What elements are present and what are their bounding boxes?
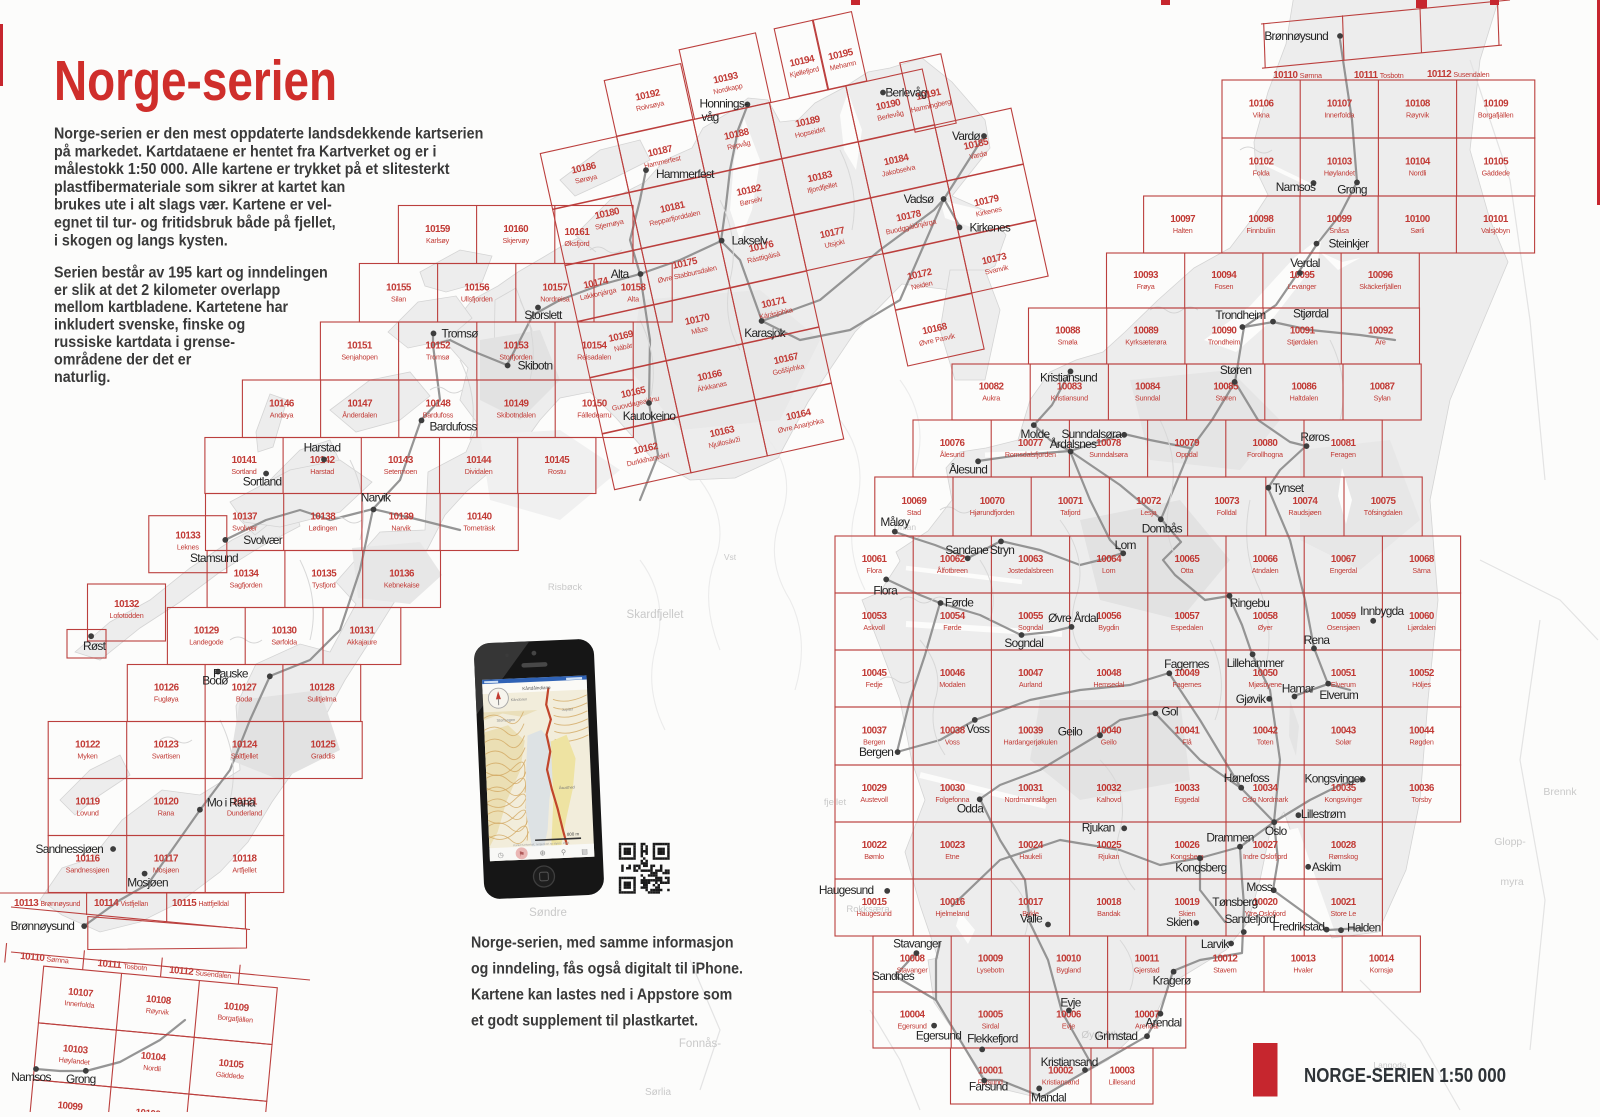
svg-text:Karasjok: Karasjok	[744, 326, 785, 340]
svg-text:Innerfolda: Innerfolda	[1324, 111, 1354, 120]
svg-text:Fonnås-: Fonnås-	[679, 1038, 721, 1050]
svg-text:10073: 10073	[1214, 496, 1240, 507]
svg-text:Mosjøen: Mosjøen	[153, 866, 179, 875]
svg-text:Sogndal: Sogndal	[1018, 623, 1044, 632]
svg-text:Farsund: Farsund	[969, 1080, 1008, 1094]
svg-text:10030: 10030	[940, 783, 966, 794]
svg-text:Røgden: Røgden	[1409, 738, 1434, 747]
svg-text:Ålfotbreen: Ålfotbreen	[937, 566, 968, 575]
svg-text:Kongsvinger: Kongsvinger	[1324, 795, 1363, 804]
svg-text:Store Le: Store Le	[1331, 909, 1357, 918]
svg-text:Setermoen: Setermoen	[384, 467, 418, 476]
svg-text:Karlsøy: Karlsøy	[426, 236, 450, 245]
svg-text:naturlig.: naturlig.	[54, 368, 110, 386]
svg-text:Kirkenes: Kirkenes	[970, 220, 1011, 234]
svg-text:10118: 10118	[232, 854, 257, 865]
svg-text:10022: 10022	[862, 840, 888, 851]
svg-text:Etne: Etne	[945, 852, 959, 861]
svg-text:Kalhovd: Kalhovd	[1096, 795, 1121, 804]
svg-text:10017: 10017	[1018, 897, 1044, 908]
svg-text:10043: 10043	[1331, 726, 1357, 737]
svg-text:Elverum: Elverum	[1319, 688, 1359, 702]
svg-text:Oslo: Oslo	[1265, 824, 1288, 838]
svg-text:10110 Sømna: 10110 Sømna	[1273, 70, 1322, 81]
svg-text:10127: 10127	[232, 683, 258, 694]
svg-text:Geilo: Geilo	[1058, 724, 1083, 738]
svg-text:Borgafjällen: Borgafjällen	[1478, 111, 1514, 120]
svg-text:Sørfolda: Sørfolda	[271, 638, 297, 647]
svg-text:10096: 10096	[1368, 270, 1394, 281]
svg-text:10031: 10031	[1018, 783, 1044, 794]
svg-text:10037: 10037	[862, 726, 888, 737]
svg-text:10081: 10081	[1331, 438, 1357, 449]
svg-text:Bandak: Bandak	[1097, 909, 1121, 918]
svg-text:Gjøvik: Gjøvik	[1236, 692, 1266, 706]
svg-text:Røros: Røros	[1300, 430, 1330, 444]
svg-text:Skäckerfjällen: Skäckerfjällen	[1359, 282, 1401, 291]
svg-text:Rana: Rana	[158, 809, 175, 818]
svg-text:Ullsfjorden: Ullsfjorden	[461, 294, 493, 303]
svg-text:Folldal: Folldal	[1217, 508, 1237, 517]
svg-text:Höljes: Höljes	[1412, 680, 1431, 689]
svg-text:10064: 10064	[1096, 554, 1122, 565]
svg-text:Vardø: Vardø	[952, 129, 980, 143]
svg-text:10052: 10052	[1409, 668, 1435, 679]
svg-text:10099: 10099	[57, 1100, 84, 1112]
svg-text:Trondheim: Trondheim	[1215, 308, 1266, 322]
svg-text:Dombås: Dombås	[1142, 521, 1183, 535]
svg-text:Narvik: Narvik	[361, 491, 391, 505]
svg-text:10135: 10135	[311, 569, 337, 580]
svg-text:Haltdalen: Haltdalen	[1290, 394, 1319, 403]
svg-text:Sylan: Sylan	[1374, 394, 1391, 403]
svg-text:Hammerfest: Hammerfest	[656, 167, 715, 181]
svg-text:Kongsberg: Kongsberg	[1175, 861, 1226, 875]
svg-text:10046: 10046	[940, 668, 966, 679]
svg-text:Sandnes: Sandnes	[872, 969, 915, 983]
svg-text:Stavern: Stavern	[1213, 966, 1237, 975]
svg-text:10054: 10054	[940, 611, 966, 622]
svg-text:10014: 10014	[1369, 954, 1395, 965]
svg-text:Steinkjer: Steinkjer	[1329, 237, 1370, 251]
svg-text:10133: 10133	[175, 531, 201, 542]
svg-text:Ljørdalen: Ljørdalen	[1407, 623, 1435, 632]
svg-text:10148: 10148	[426, 398, 452, 409]
svg-text:10088: 10088	[1055, 326, 1081, 337]
svg-text:Skien: Skien	[1166, 915, 1192, 929]
svg-text:10143: 10143	[388, 455, 414, 466]
svg-text:Nordmannslågen: Nordmannslågen	[1005, 795, 1057, 804]
svg-text:Svolvær: Svolvær	[243, 533, 282, 547]
svg-text:egnet til tur- og fritidsbruk: egnet til tur- og fritidsbruk både på fj…	[54, 214, 336, 232]
svg-text:10008: 10008	[900, 954, 926, 965]
svg-text:10018: 10018	[1096, 897, 1122, 908]
svg-text:10024: 10024	[1018, 840, 1044, 851]
svg-text:Valsjöbyn: Valsjöbyn	[1481, 226, 1510, 235]
svg-text:10152: 10152	[425, 341, 451, 352]
svg-text:10145: 10145	[544, 455, 570, 466]
svg-text:Aukra: Aukra	[982, 394, 1000, 403]
svg-text:10013: 10013	[1291, 954, 1317, 965]
svg-text:Sirdal: Sirdal	[982, 1022, 1000, 1031]
svg-text:Årdalsnes: Årdalsnes	[1050, 436, 1097, 451]
svg-text:inkludert svenske, finske og: inkludert svenske, finske og	[54, 316, 245, 334]
svg-text:10060: 10060	[1409, 611, 1435, 622]
svg-text:10128: 10128	[309, 683, 335, 694]
svg-text:Dunderland: Dunderland	[227, 809, 262, 818]
svg-text:10130: 10130	[272, 626, 298, 637]
svg-text:10087: 10087	[1370, 382, 1396, 393]
svg-text:Kongsvinger: Kongsvinger	[1304, 771, 1363, 785]
svg-text:Rjukan: Rjukan	[1082, 820, 1115, 834]
svg-text:10141: 10141	[232, 455, 258, 466]
svg-text:10139: 10139	[389, 512, 415, 523]
svg-text:10094: 10094	[1211, 270, 1237, 281]
svg-text:Ringebu: Ringebu	[1230, 596, 1269, 610]
svg-text:Tafjord: Tafjord	[1060, 508, 1080, 517]
svg-text:10136: 10136	[389, 569, 415, 580]
svg-text:Støren: Støren	[1220, 363, 1252, 377]
svg-text:Osensjøen: Osensjøen	[1327, 623, 1360, 632]
svg-text:Alta: Alta	[627, 294, 639, 303]
svg-text:Haugesund: Haugesund	[857, 909, 892, 918]
svg-text:Namsos: Namsos	[11, 1070, 51, 1084]
svg-text:Romsdalsfjorden: Romsdalsfjorden	[1005, 450, 1056, 459]
svg-text:Verdal: Verdal	[1290, 256, 1320, 270]
svg-text:Hardangerjøkulen: Hardangerjøkulen	[1004, 738, 1058, 747]
svg-text:10042: 10042	[1253, 726, 1279, 737]
svg-text:Lofotodden: Lofotodden	[110, 611, 144, 620]
svg-text:10103: 10103	[1327, 157, 1353, 168]
svg-text:Storslett: Storslett	[524, 308, 563, 322]
svg-text:Egersund: Egersund	[916, 1029, 961, 1043]
svg-text:10158: 10158	[621, 282, 647, 293]
svg-text:10125: 10125	[311, 740, 337, 751]
svg-text:Fugløya: Fugløya	[154, 695, 179, 704]
svg-text:Kebnekaise: Kebnekaise	[384, 581, 420, 590]
svg-text:Bergen: Bergen	[859, 745, 893, 759]
svg-text:Toten: Toten	[1257, 738, 1274, 747]
svg-text:10147: 10147	[347, 398, 373, 409]
svg-text:Engerdal: Engerdal	[1330, 566, 1358, 575]
svg-text:10108: 10108	[1405, 99, 1431, 110]
svg-text:Flekkefjord: Flekkefjord	[967, 1032, 1018, 1046]
svg-text:Atndalen: Atndalen	[1252, 566, 1279, 575]
svg-text:10154: 10154	[582, 341, 608, 352]
svg-text:Torsby: Torsby	[1412, 795, 1433, 804]
svg-text:Kristiansand: Kristiansand	[1042, 1078, 1079, 1087]
svg-text:10026: 10026	[1175, 840, 1201, 851]
svg-text:10041: 10041	[1175, 726, 1201, 737]
svg-text:Kristiansund: Kristiansund	[1040, 370, 1097, 384]
svg-text:Søndre: Søndre	[529, 907, 567, 919]
svg-text:Tynset: Tynset	[1273, 481, 1305, 495]
svg-text:10067: 10067	[1331, 554, 1357, 565]
svg-text:10089: 10089	[1133, 326, 1159, 337]
svg-text:10146: 10146	[269, 398, 295, 409]
svg-text:Norge-serien er den mest oppda: Norge-serien er den mest oppdaterte land…	[54, 125, 483, 143]
svg-text:Nordli: Nordli	[1409, 169, 1427, 178]
svg-text:Geilo: Geilo	[1101, 738, 1117, 747]
svg-text:10056: 10056	[1096, 611, 1122, 622]
svg-text:10107: 10107	[1327, 99, 1353, 110]
svg-text:Honnings-: Honnings-	[699, 96, 748, 110]
svg-text:⊕: ⊕	[539, 848, 546, 857]
svg-text:Mosjøen: Mosjøen	[127, 876, 168, 890]
svg-text:Hemsedal: Hemsedal	[1093, 680, 1124, 689]
svg-text:Tromsø: Tromsø	[426, 353, 450, 362]
svg-text:Valle: Valle	[1020, 912, 1043, 926]
svg-text:Folda: Folda	[1253, 169, 1270, 178]
svg-text:10068: 10068	[1409, 554, 1435, 565]
svg-text:Kragerø: Kragerø	[1153, 974, 1191, 988]
svg-text:10155: 10155	[386, 282, 412, 293]
svg-text:Senjahopen: Senjahopen	[341, 353, 378, 362]
svg-text:10105: 10105	[1483, 157, 1509, 168]
svg-text:10129: 10129	[194, 626, 220, 637]
svg-text:10036: 10036	[1409, 783, 1435, 794]
svg-text:Lillehammer: Lillehammer	[1227, 656, 1285, 670]
svg-text:10122: 10122	[75, 740, 101, 751]
svg-text:10011: 10011	[1135, 954, 1160, 965]
svg-text:10058: 10058	[1253, 611, 1279, 622]
svg-text:Finnbuliin: Finnbuliin	[1247, 226, 1276, 235]
svg-text:Stamsund: Stamsund	[190, 551, 238, 565]
svg-text:Stjørdalen: Stjørdalen	[1287, 338, 1318, 347]
svg-text:Landegode: Landegode	[189, 638, 223, 647]
svg-text:Innbygda: Innbygda	[1360, 604, 1404, 618]
svg-text:Svartisen: Svartisen	[152, 752, 180, 761]
svg-text:Evje: Evje	[1062, 1022, 1075, 1031]
svg-text:Moss: Moss	[1246, 880, 1272, 894]
svg-text:10140: 10140	[467, 512, 493, 523]
svg-text:10098: 10098	[1249, 214, 1275, 225]
svg-text:10045: 10045	[862, 668, 888, 679]
svg-text:10016: 10016	[940, 897, 966, 908]
svg-text:Rena: Rena	[1304, 633, 1331, 647]
svg-text:Svolvær: Svolvær	[232, 524, 258, 533]
svg-text:Solør: Solør	[1335, 738, 1352, 747]
svg-text:10010: 10010	[1056, 954, 1082, 965]
svg-text:Røyrvik: Røyrvik	[1406, 111, 1430, 120]
svg-text:Sulitjelma: Sulitjelma	[307, 695, 336, 704]
svg-text:Myken: Myken	[77, 752, 97, 761]
svg-text:Halten: Halten	[1173, 226, 1193, 235]
svg-text:Graddis: Graddis	[311, 752, 335, 761]
svg-text:Åre: Åre	[1375, 338, 1386, 347]
svg-text:10109: 10109	[1483, 99, 1509, 110]
svg-text:Sortland: Sortland	[243, 475, 282, 489]
svg-text:Aurland: Aurland	[1019, 680, 1043, 689]
svg-text:Storfangen: Storfangen	[496, 718, 515, 723]
svg-text:Sunndalsøra: Sunndalsøra	[1089, 450, 1128, 459]
svg-text:Hønefoss: Hønefoss	[1224, 771, 1270, 785]
svg-text:10032: 10032	[1096, 783, 1122, 794]
svg-text:Fedje: Fedje	[866, 680, 883, 689]
svg-text:Bømlo: Bømlo	[864, 852, 884, 861]
svg-text:Flå: Flå	[1182, 738, 1192, 747]
svg-text:10126: 10126	[154, 683, 180, 694]
svg-text:10106: 10106	[1249, 99, 1275, 110]
svg-text:Voss: Voss	[966, 722, 990, 736]
svg-text:Bygdin: Bygdin	[1098, 623, 1119, 632]
svg-text:Lillestrøm: Lillestrøm	[1301, 807, 1346, 821]
svg-text:Sandnessjøen: Sandnessjøen	[35, 842, 103, 856]
svg-text:Sørlia: Sørlia	[645, 1087, 672, 1098]
svg-text:10097: 10097	[1170, 214, 1196, 225]
svg-text:Sogndal: Sogndal	[1004, 636, 1043, 650]
svg-text:10063: 10063	[1018, 554, 1044, 565]
svg-text:Berlevåg: Berlevåg	[885, 86, 926, 100]
svg-text:Akkajaure: Akkajaure	[347, 638, 377, 647]
svg-text:10065: 10065	[1175, 554, 1201, 565]
svg-text:Rjukan: Rjukan	[1098, 852, 1119, 861]
svg-text:10048: 10048	[1096, 668, 1122, 679]
svg-text:Øyer: Øyer	[1258, 623, 1274, 632]
svg-text:Odda: Odda	[957, 801, 984, 815]
svg-text:10075: 10075	[1371, 496, 1397, 507]
svg-text:Rostu: Rostu	[548, 467, 566, 476]
svg-text:Drammen: Drammen	[1206, 831, 1253, 845]
svg-text:⚑: ⚑	[518, 850, 525, 858]
svg-text:Arendal: Arendal	[1145, 1016, 1181, 1030]
svg-text:Glopp-: Glopp-	[1494, 836, 1526, 848]
svg-text:Grong: Grong	[66, 1072, 96, 1086]
svg-text:Ålesund: Ålesund	[949, 461, 987, 476]
svg-text:Tromsø: Tromsø	[442, 326, 479, 340]
svg-text:Lillesand: Lillesand	[1109, 1078, 1136, 1087]
svg-text:Støren: Støren	[1216, 394, 1237, 403]
svg-text:Jostedalsbreen: Jostedalsbreen	[1008, 566, 1054, 575]
svg-text:10033: 10033	[1175, 783, 1201, 794]
svg-text:10157: 10157	[543, 282, 569, 293]
svg-text:10076: 10076	[940, 438, 966, 449]
svg-text:Harstad: Harstad	[304, 440, 341, 454]
svg-text:Vadsø: Vadsø	[904, 192, 934, 206]
svg-text:10069: 10069	[902, 496, 928, 507]
svg-text:Kårtdåindiane: Kårtdåindiane	[522, 684, 551, 691]
svg-text:10111 Tosbotn: 10111 Tosbotn	[1354, 70, 1404, 81]
svg-text:10001: 10001	[978, 1066, 1004, 1077]
svg-text:Sandefjord: Sandefjord	[1225, 912, 1276, 926]
svg-text:Askvoll: Askvoll	[863, 623, 885, 632]
svg-text:10072: 10072	[1136, 496, 1162, 507]
svg-text:Kautokeino: Kautokeino	[623, 409, 677, 423]
svg-text:10012: 10012	[1213, 954, 1239, 965]
svg-text:og inndeling, fås også digital: og inndeling, fås også digitalt til iPho…	[471, 961, 743, 978]
svg-text:Saltfjellet: Saltfjellet	[231, 752, 258, 761]
svg-text:10100: 10100	[1405, 214, 1431, 225]
svg-text:Evje: Evje	[1060, 996, 1081, 1010]
svg-text:▤: ▤	[581, 848, 588, 855]
svg-text:Fredrikstad: Fredrikstad	[1273, 919, 1325, 933]
svg-text:er slik at det 2 kilometer ove: er slik at det 2 kilometer overlapp	[54, 281, 280, 299]
svg-text:⚲: ⚲	[561, 848, 566, 856]
svg-text:Harstad: Harstad	[310, 467, 334, 476]
svg-text:Fagernes: Fagernes	[1173, 680, 1202, 689]
svg-text:Sandane: Sandane	[945, 543, 989, 557]
svg-text:10057: 10057	[1175, 611, 1201, 622]
svg-text:våg: våg	[701, 110, 718, 124]
svg-text:Sørli: Sørli	[1410, 226, 1424, 235]
svg-text:10055: 10055	[1018, 611, 1044, 622]
svg-text:Kristiansand: Kristiansand	[1041, 1055, 1098, 1069]
svg-text:Lom: Lom	[1102, 566, 1116, 575]
svg-text:Øvre Årdal: Øvre Årdal	[1048, 610, 1098, 625]
svg-text:Haukeli: Haukeli	[1019, 852, 1042, 861]
svg-text:Grong: Grong	[1337, 182, 1367, 196]
svg-text:Oppdal: Oppdal	[1176, 450, 1199, 459]
svg-text:Gol: Gol	[1161, 704, 1177, 718]
svg-text:Hamar: Hamar	[1282, 682, 1315, 696]
svg-text:Flora: Flora	[866, 566, 882, 575]
svg-text:Andøya: Andøya	[270, 410, 294, 419]
svg-text:10120: 10120	[154, 797, 180, 808]
svg-text:Smøla: Smøla	[1058, 338, 1078, 347]
svg-text:Brønnøysund: Brønnøysund	[11, 919, 75, 933]
svg-text:10074: 10074	[1293, 496, 1319, 507]
svg-text:Lysebotn: Lysebotn	[977, 966, 1005, 975]
svg-text:i skogen og langs kysten.: i skogen og langs kysten.	[54, 232, 228, 250]
svg-text:10059: 10059	[1331, 611, 1357, 622]
svg-text:10004: 10004	[900, 1010, 926, 1021]
svg-text:10044: 10044	[1409, 726, 1435, 737]
svg-text:Måløy: Måløy	[880, 515, 910, 529]
svg-text:10093: 10093	[1133, 270, 1159, 281]
svg-text:Frøya: Frøya	[1137, 282, 1155, 291]
svg-text:Bardufoss: Bardufoss	[423, 410, 454, 419]
svg-text:Norge-serien: Norge-serien	[54, 49, 337, 113]
svg-text:Vikna: Vikna	[1253, 111, 1270, 120]
svg-text:Lesja: Lesja	[1140, 508, 1156, 517]
svg-text:Sagfjorden: Sagfjorden	[230, 581, 263, 590]
svg-text:Haugesund: Haugesund	[819, 883, 874, 897]
svg-text:Stavanger: Stavanger	[893, 937, 942, 951]
svg-text:Førde: Førde	[943, 623, 961, 632]
svg-text:Dividalen: Dividalen	[465, 467, 493, 476]
svg-text:10027: 10027	[1253, 840, 1279, 851]
svg-text:800 m: 800 m	[567, 831, 580, 837]
svg-text:Kyrksæterøra: Kyrksæterøra	[1125, 338, 1166, 347]
svg-text:10156: 10156	[464, 282, 490, 293]
svg-text:Feragen: Feragen	[1330, 450, 1356, 459]
svg-text:Tysfjord: Tysfjord	[312, 581, 336, 590]
svg-text:Fosen: Fosen	[1214, 282, 1233, 291]
svg-text:Lom: Lom	[1115, 538, 1137, 552]
svg-text:Nordreisa: Nordreisa	[540, 294, 570, 303]
svg-text:Modalen: Modalen	[939, 680, 965, 689]
svg-text:Vst: Vst	[724, 552, 737, 562]
svg-text:10099: 10099	[1327, 214, 1353, 225]
svg-text:10159: 10159	[425, 224, 451, 235]
svg-text:Namsos: Namsos	[1276, 180, 1316, 194]
svg-text:10038: 10038	[940, 726, 966, 737]
svg-text:10053: 10053	[862, 611, 888, 622]
svg-text:10086: 10086	[1292, 382, 1318, 393]
svg-text:Ånderdalen: Ånderdalen	[342, 410, 377, 419]
svg-text:Indre Oslofjord: Indre Oslofjord	[1243, 852, 1287, 861]
svg-text:10015: 10015	[862, 897, 888, 908]
svg-text:Fauske: Fauske	[213, 666, 249, 680]
svg-text:10066: 10066	[1253, 554, 1279, 565]
svg-text:10131: 10131	[350, 626, 376, 637]
svg-text:Bygland: Bygland	[1056, 966, 1081, 975]
svg-text:10003: 10003	[1110, 1066, 1136, 1077]
svg-text:Reisadalen: Reisadalen	[577, 353, 611, 362]
svg-text:Voss: Voss	[945, 738, 960, 747]
svg-text:Austevoll: Austevoll	[860, 795, 888, 804]
svg-text:Forollhogna: Forollhogna	[1247, 450, 1283, 459]
